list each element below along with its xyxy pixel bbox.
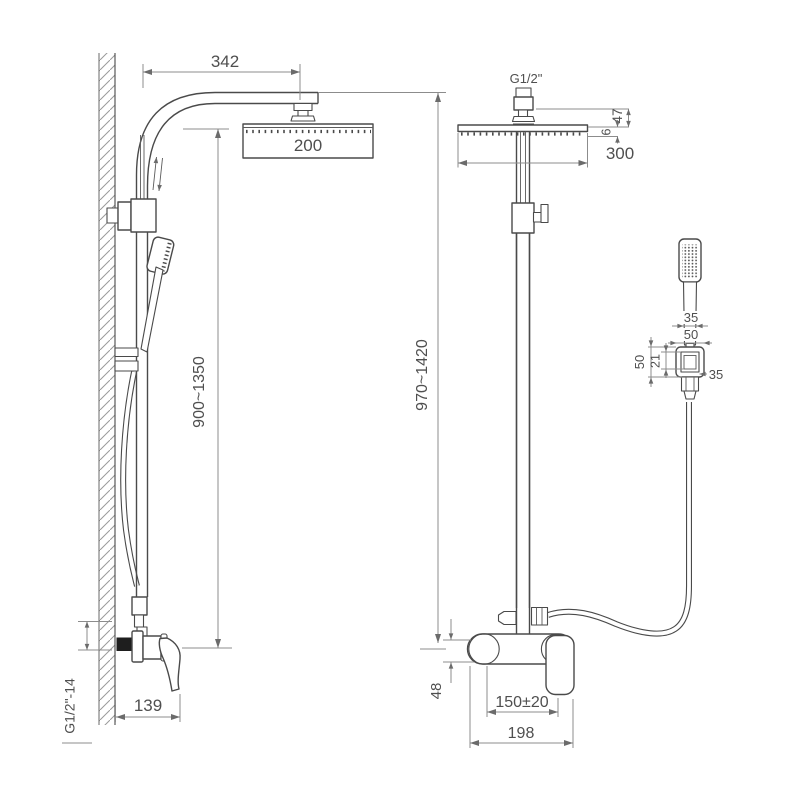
shower-head-front — [458, 125, 588, 134]
dim-holder-width: 50 — [684, 327, 698, 342]
hose-nut — [532, 608, 548, 626]
label-top-thread: G1/2" — [510, 71, 543, 86]
mixer-handle-front — [546, 636, 574, 695]
riser-pipe-front — [512, 132, 548, 637]
label-inlet-thread: G1/2"-14 — [62, 678, 78, 734]
mixer-front — [468, 608, 575, 695]
dim-holder-side: 35 — [709, 367, 723, 382]
hand-shower-hose-front — [548, 402, 689, 634]
top-connector-front — [513, 88, 535, 124]
wall-section — [99, 53, 115, 725]
mixer-side — [117, 597, 180, 691]
dim-head-width: 300 — [606, 144, 634, 163]
spray-face-dots — [682, 245, 698, 278]
hand-shower-hose-side — [123, 372, 137, 586]
dim-inlet-spacing: 150±20 — [495, 694, 548, 711]
dim-holder-height: 50 — [632, 355, 647, 369]
dim-mixer-offset: 139 — [134, 696, 162, 715]
mixer-handle-side — [159, 638, 180, 691]
hand-shower-holder-front — [676, 347, 704, 399]
shower-head-side: 200 — [243, 124, 373, 158]
dim-arm-reach: 342 — [211, 52, 239, 71]
drawing-svg: 200 — [0, 0, 800, 800]
dim-head-depth: 200 — [294, 136, 322, 155]
dim-height-range-front: 970~1420 — [414, 339, 431, 411]
dim-handset-width: 35 — [684, 310, 698, 325]
dim-height-range-side: 900~1350 — [191, 356, 208, 428]
wall-inlet-fitting — [117, 638, 132, 651]
hand-shower-holder-side — [115, 348, 138, 371]
riser-pipe-side — [137, 93, 447, 598]
height-adjust-arrows — [153, 157, 163, 191]
dim-body-width: 198 — [508, 725, 535, 742]
technical-drawing-shower-system: 200 — [0, 0, 800, 800]
dim-holder-inner-height: 21 — [649, 354, 663, 368]
dim-head-thickness: 6 — [600, 128, 614, 135]
hand-shower-side — [141, 236, 175, 352]
dim-body-height: 48 — [428, 683, 445, 700]
overhead-connector-side — [291, 104, 315, 125]
